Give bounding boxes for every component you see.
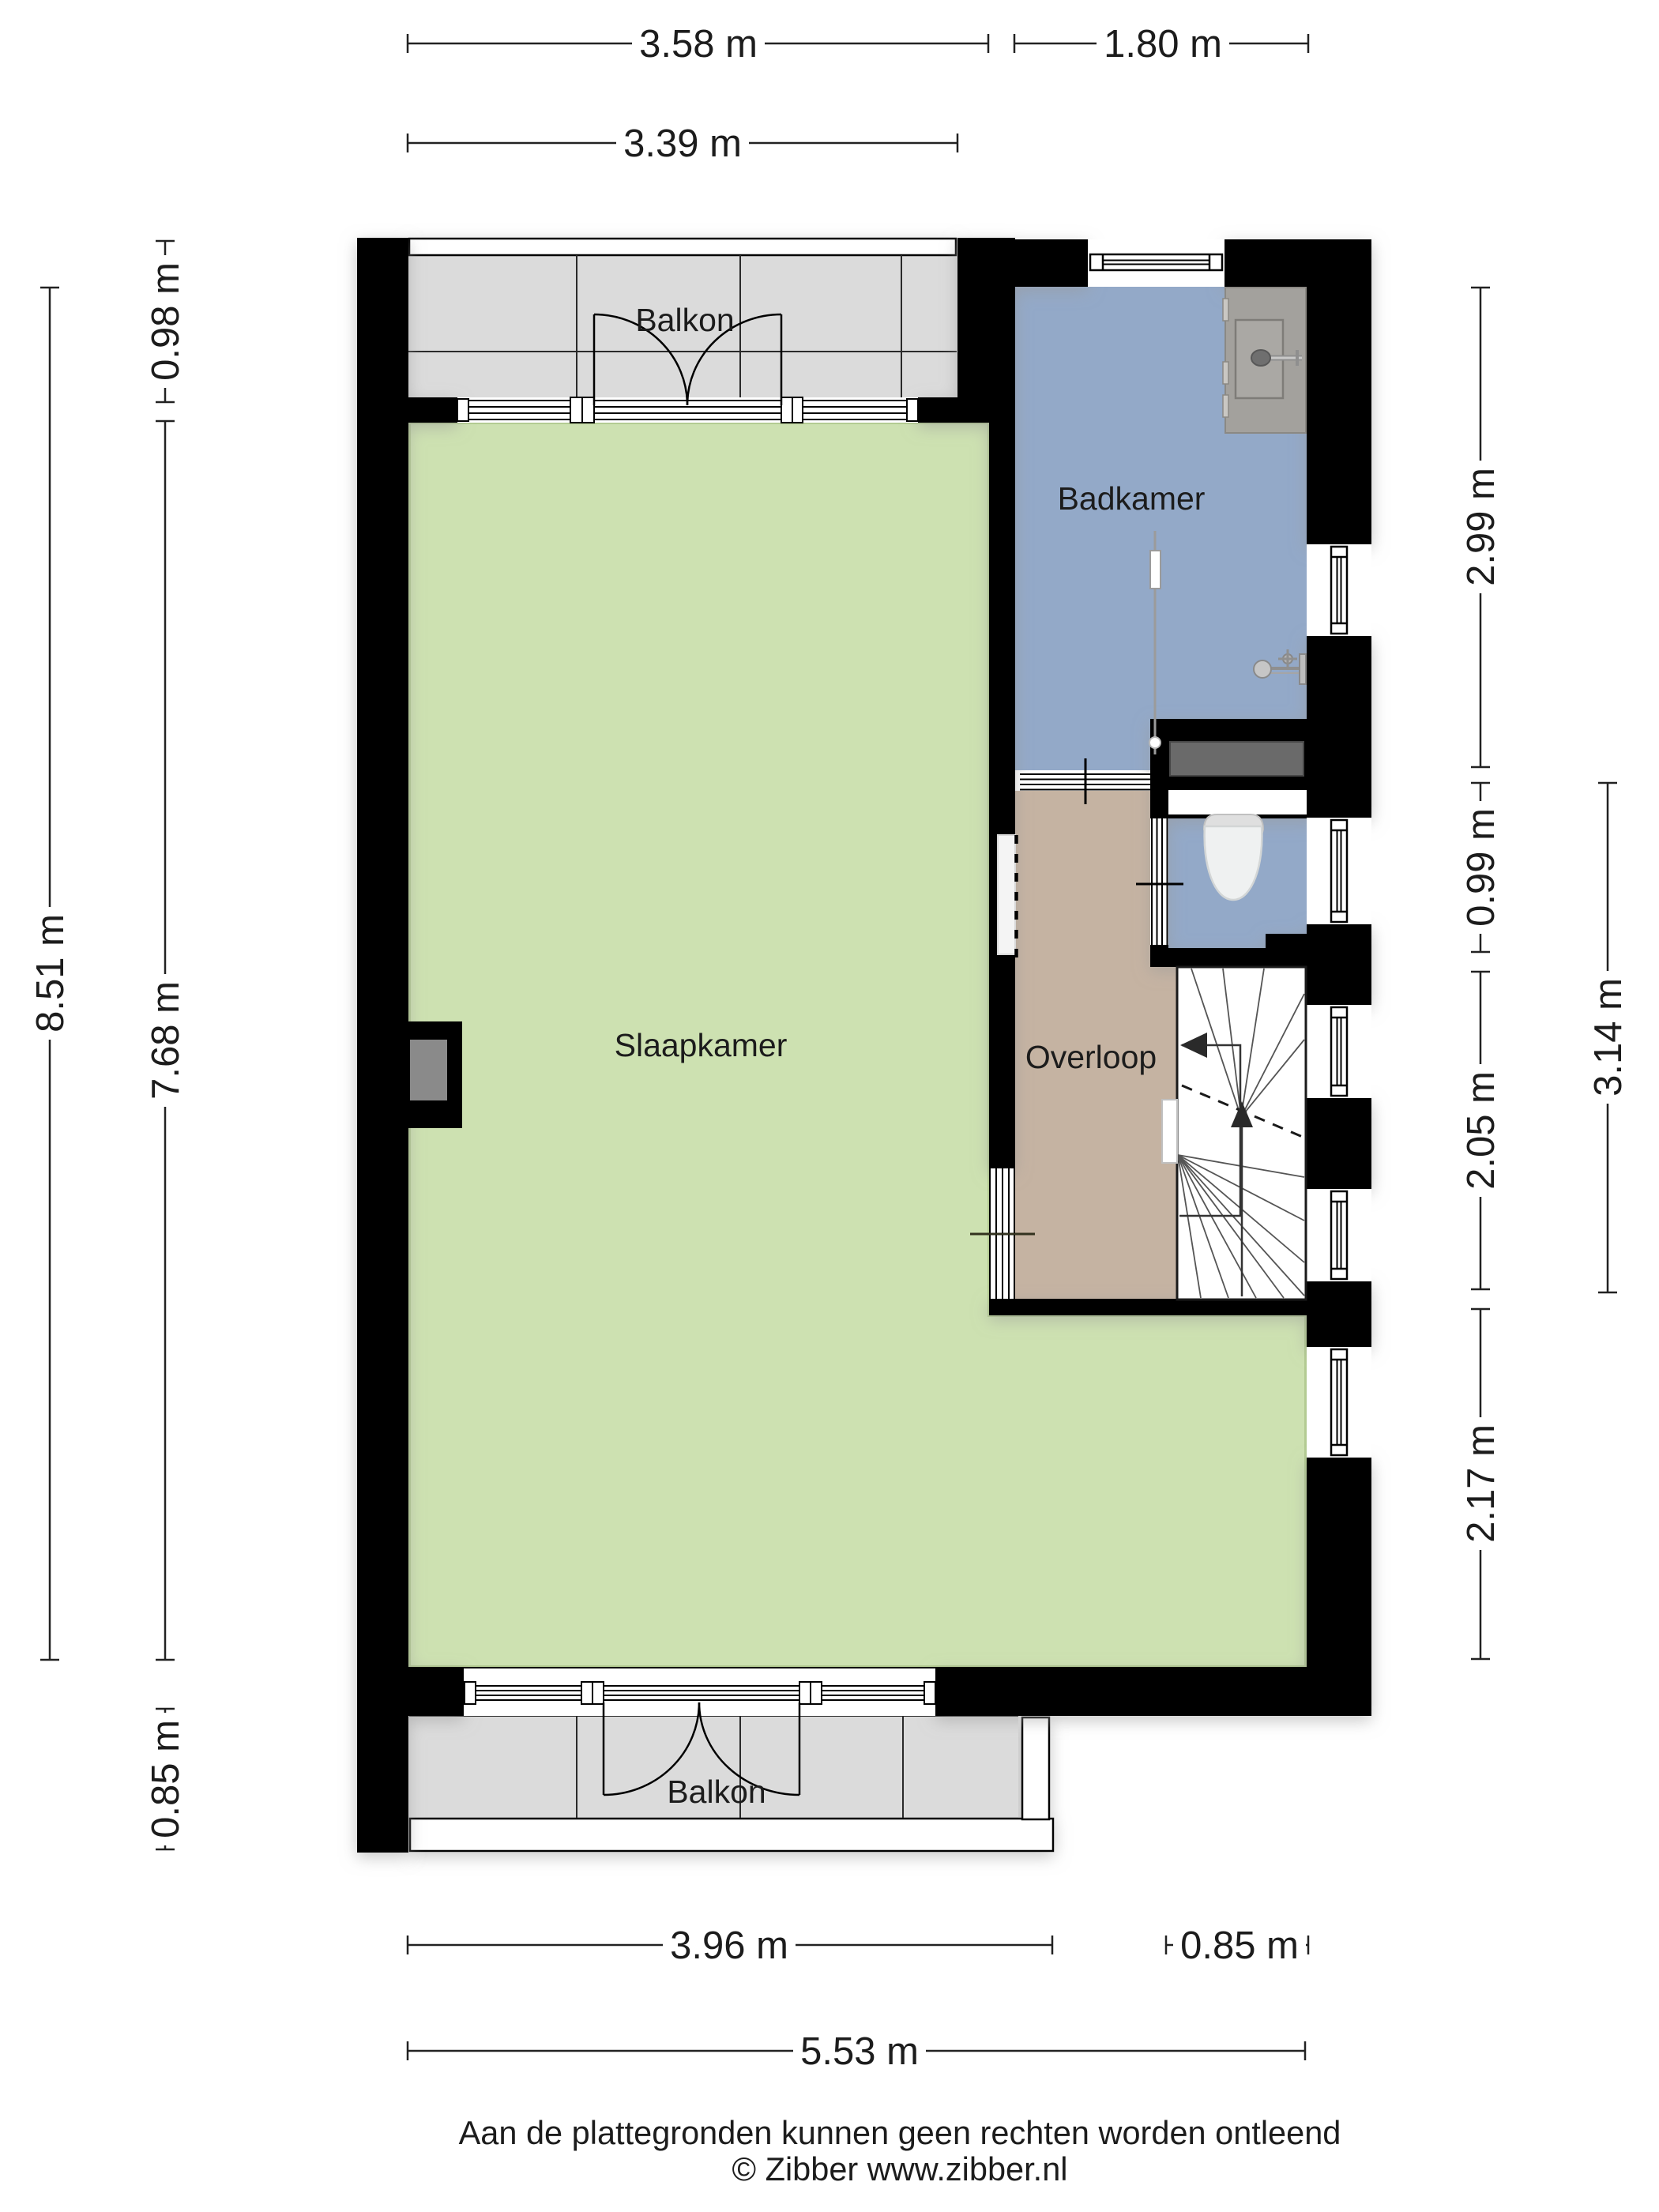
svg-text:8.51 m: 8.51 m — [29, 914, 72, 1033]
svg-text:0.85 m: 0.85 m — [1180, 1924, 1299, 1967]
svg-text:Overloop: Overloop — [1025, 1039, 1157, 1075]
svg-text:5.53 m: 5.53 m — [800, 2030, 919, 2073]
svg-text:3.96 m: 3.96 m — [670, 1924, 788, 1967]
svg-text:2.17 m: 2.17 m — [1460, 1424, 1503, 1543]
svg-text:Slaapkamer: Slaapkamer — [615, 1027, 788, 1063]
svg-text:© Zibber www.zibber.nl: © Zibber www.zibber.nl — [732, 2150, 1068, 2188]
svg-text:3.14 m: 3.14 m — [1587, 978, 1630, 1097]
svg-text:Balkon: Balkon — [667, 1774, 766, 1810]
svg-text:2.05 m: 2.05 m — [1460, 1071, 1503, 1190]
svg-text:Badkamer: Badkamer — [1058, 480, 1206, 517]
svg-text:3.58 m: 3.58 m — [639, 23, 758, 66]
svg-text:7.68 m: 7.68 m — [145, 981, 187, 1100]
svg-text:Aan de plattegronden kunnen ge: Aan de plattegronden kunnen geen rechten… — [459, 2114, 1341, 2151]
svg-text:0.99 m: 0.99 m — [1460, 808, 1503, 927]
svg-text:0.85 m: 0.85 m — [145, 1720, 187, 1838]
svg-text:3.39 m: 3.39 m — [623, 122, 742, 165]
svg-text:0.98 m: 0.98 m — [145, 262, 187, 381]
svg-text:2.99 m: 2.99 m — [1460, 468, 1503, 586]
svg-text:1.80 m: 1.80 m — [1104, 23, 1222, 66]
svg-text:Balkon: Balkon — [635, 302, 734, 338]
